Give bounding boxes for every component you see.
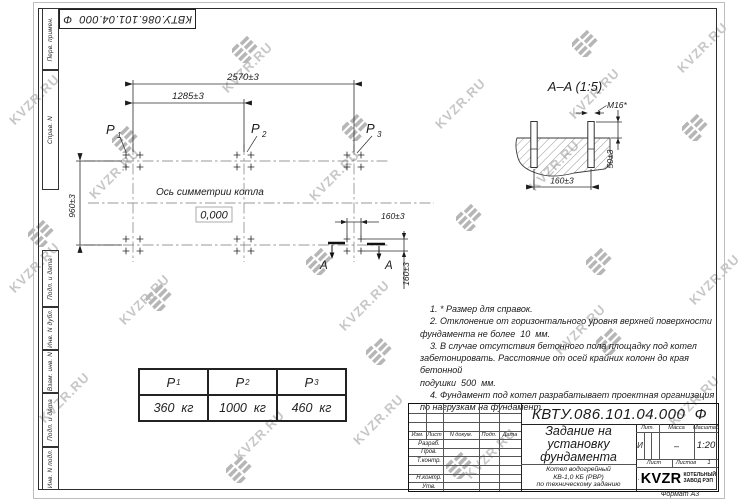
section-cut-marks: A A	[319, 243, 393, 272]
tb-row-razrab: Разраб.	[409, 439, 447, 448]
dimension-lines	[76, 80, 408, 289]
tb-col-list: Лист	[426, 431, 443, 439]
tb-title: Задание на установку фундамента	[521, 424, 636, 464]
dim-vertical: 960±3	[67, 194, 77, 218]
header-p1-sub: 1	[176, 378, 180, 387]
tb-col-ndokum: N докум.	[443, 431, 479, 439]
tb-line	[651, 432, 652, 459]
dim-protrusion: 50±3	[605, 149, 615, 168]
tb-listov-label: Листов	[672, 459, 700, 467]
dim-spacing: 160±3	[550, 176, 574, 186]
drawing-sheet: KVZR.RU KVZR.RU KVZR.RU KVZR.RU KVZR.RU …	[0, 0, 750, 500]
brand-name: KVZR	[641, 471, 682, 487]
loads-table-header: P3	[277, 369, 346, 395]
loads-table-value: 1000 кг	[208, 395, 277, 421]
tb-line	[409, 422, 521, 423]
dim-bolt-h: 160±3	[381, 211, 405, 221]
format-label: Формат А3	[640, 491, 720, 498]
dim-bolt-v: 160±3	[401, 262, 411, 286]
brand-subtitle: КОТЕЛЬНЫЙ ЗАВОД РЭП	[683, 473, 716, 485]
axis-label: Ось симметрии котла	[156, 187, 264, 198]
bolt-thread-label: M16*	[607, 100, 628, 110]
section-mark-a1: A	[319, 260, 328, 272]
section-title: A–A (1:5)	[547, 79, 602, 94]
header-p2-sub: 2	[245, 378, 249, 387]
load-label-p2: P	[251, 121, 260, 136]
loads-table-header: P1	[139, 369, 208, 395]
section-mark-a2: A	[384, 260, 393, 272]
tb-list-label: Лист	[636, 459, 672, 467]
dim-half: 1285±3	[172, 91, 204, 102]
tb-row-nkontr: Н.контр.	[409, 474, 447, 482]
tb-line	[409, 413, 521, 414]
loads-table: P1 P2 P3 360 кг 1000 кг 460 кг	[138, 368, 347, 422]
loads-table-value: 360 кг	[139, 395, 208, 421]
tb-line	[644, 432, 645, 459]
header-p3: P	[304, 375, 313, 390]
loads-table-header: P2	[208, 369, 277, 395]
tb-lit-value: И	[636, 432, 644, 459]
tb-masshtab-value: 1:20	[694, 432, 718, 459]
tb-col-podp: Подп.	[479, 431, 499, 439]
tb-doc-number: КВТУ.086.101.04.000 Ф	[521, 404, 718, 424]
load-label-p1: P	[106, 122, 115, 137]
title-block: КВТУ.086.101.04.000 Ф Задание на установ…	[408, 403, 719, 492]
technical-notes: 1. * Размер для справок. 2. Отклонение о…	[420, 303, 718, 414]
tb-row-prov: Пров.	[409, 448, 447, 456]
tb-massa-header: Масса	[659, 424, 694, 432]
tb-col-izm: Изм.	[409, 431, 426, 439]
header-p2: P	[235, 375, 244, 390]
header-p1: P	[166, 375, 175, 390]
load-label-p2-sub: 2	[261, 130, 267, 139]
header-p3-sub: 3	[314, 378, 318, 387]
tb-subtitle: Котел водогрейный КВ-1,0 КБ (РВР) по тех…	[521, 464, 636, 491]
load-leaders	[120, 136, 372, 153]
dim-overall: 2570±3	[226, 72, 259, 83]
company-logo: KVZR КОТЕЛЬНЫЙ ЗАВОД РЭП	[638, 468, 716, 490]
tb-row-utv: Утв.	[409, 482, 447, 491]
section-view: A–A (1:5) M16* 50±3	[516, 79, 628, 190]
tb-col-data: Дата	[499, 431, 521, 439]
thread-callout: M16*	[576, 100, 628, 115]
concrete-foundation	[516, 138, 611, 176]
tb-line	[409, 465, 521, 466]
load-label-p3-sub: 3	[377, 130, 382, 139]
tb-masshtab-header: Масштаб	[694, 424, 718, 432]
tb-row-tkontr: Т.контр.	[409, 456, 447, 465]
anchor-bolt-left	[531, 122, 537, 168]
tb-listov-value: 1	[700, 459, 718, 467]
dimension-arrowheads	[341, 220, 406, 257]
load-label-p3: P	[366, 121, 375, 136]
boiler-bars-icon	[638, 471, 639, 488]
load-label-p1-sub: 1	[117, 131, 121, 140]
plan-view: 2570±3 1285±3 960±3 160±3 160±3 P 1 P 2 …	[67, 72, 434, 289]
tb-lit-header: Лит.	[636, 424, 659, 432]
loads-table-value: 460 кг	[277, 395, 346, 421]
anchor-bolt-right	[588, 122, 594, 168]
level-mark: 0,000	[200, 210, 228, 222]
tb-massa-value: –	[659, 432, 694, 459]
